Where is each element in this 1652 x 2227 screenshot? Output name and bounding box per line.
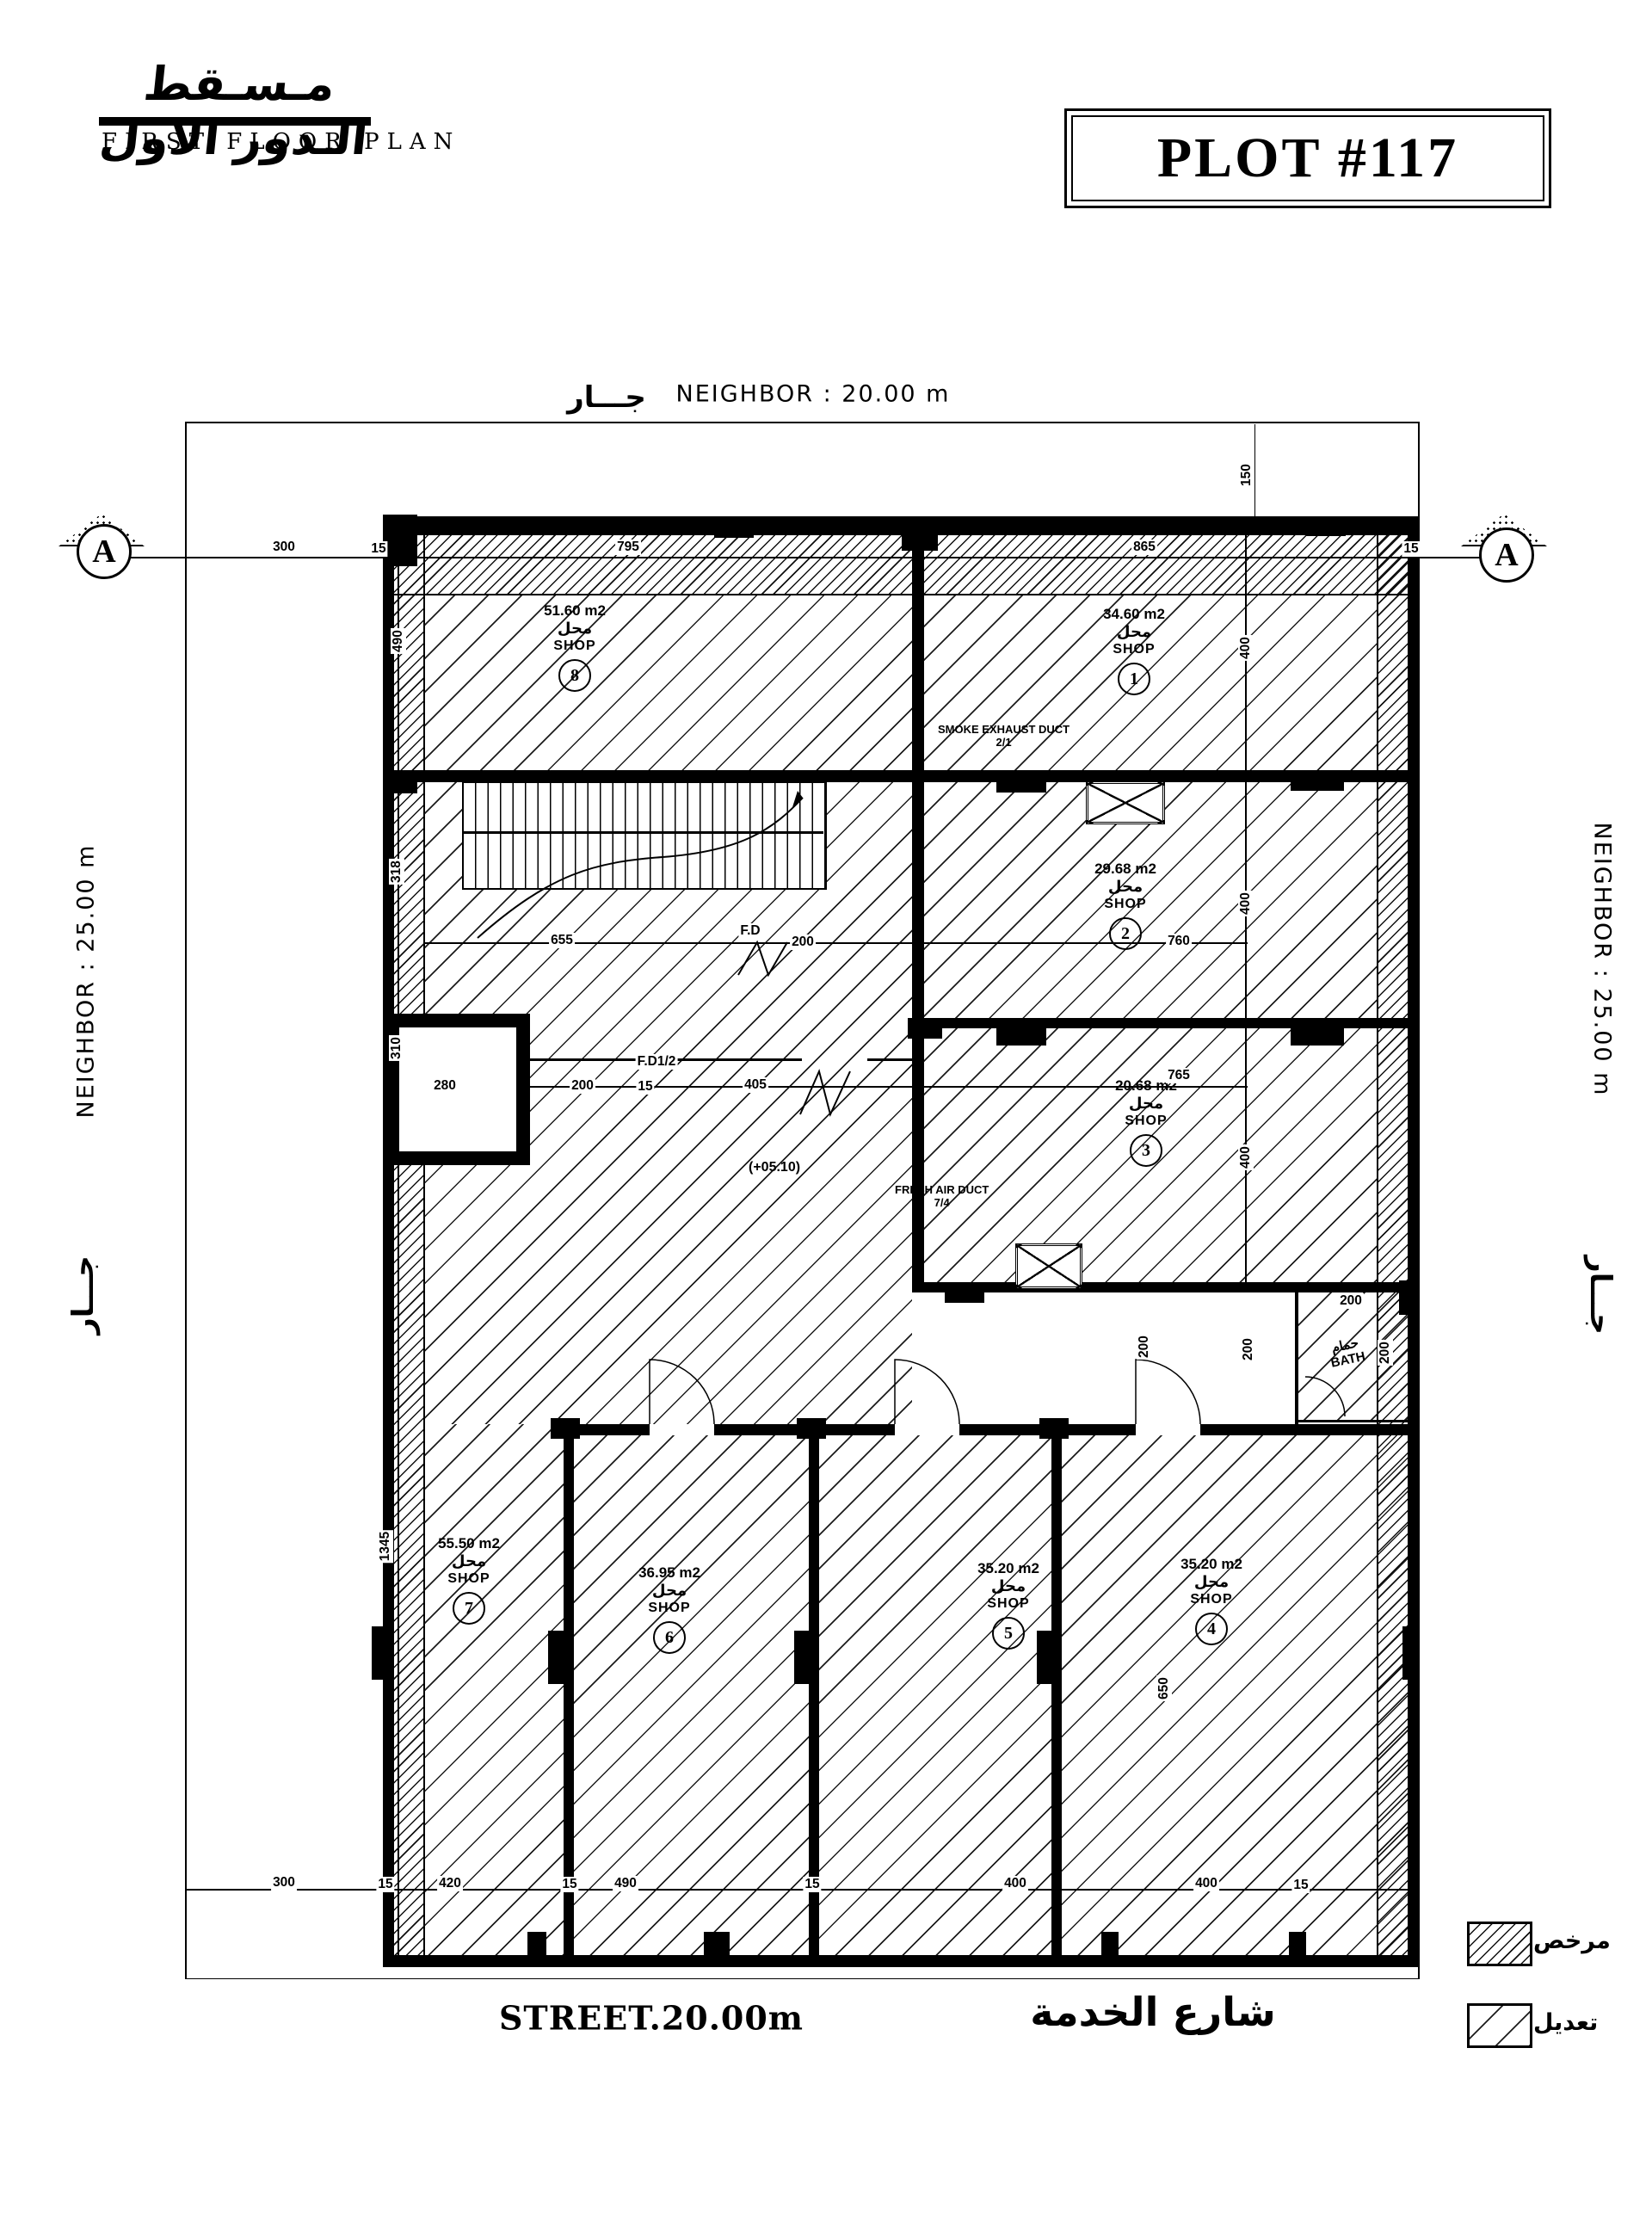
wall-segment xyxy=(867,1058,912,1061)
shop-name-arabic: محل xyxy=(404,1552,533,1571)
column xyxy=(794,1631,811,1684)
dimension-label: 400 xyxy=(1193,1876,1219,1891)
plot-boundary-top xyxy=(185,422,1420,423)
plot-number: PLOT #117 xyxy=(1071,115,1544,201)
column xyxy=(1291,1028,1344,1046)
shop-name-arabic: محل xyxy=(1082,1095,1211,1113)
neighbor-left-arabic: جـــار xyxy=(66,1255,101,1335)
shop-label: 20.68 m2محلSHOP3 xyxy=(1082,1077,1211,1167)
dimension-label: 15 xyxy=(1291,1878,1310,1893)
dimension-label: 310 xyxy=(389,1035,404,1061)
dimension-label: 200 xyxy=(1137,1334,1152,1360)
neighbor-right-arabic: جـــار xyxy=(1583,1255,1618,1335)
dimension-label: 15 xyxy=(369,541,387,557)
plot-boundary-left xyxy=(185,422,187,1979)
column xyxy=(1306,517,1346,536)
column xyxy=(797,1418,826,1439)
column xyxy=(527,1932,546,1966)
dimension-label: F.D xyxy=(738,923,761,939)
plot-boundary-right xyxy=(1418,422,1420,1979)
elevator-cab xyxy=(398,1026,518,1153)
shop-number-circle: 6 xyxy=(653,1621,686,1654)
column xyxy=(383,515,417,566)
column xyxy=(704,1932,730,1966)
smoke-exhaust-duct-box xyxy=(1086,781,1165,824)
dimension-label: 420 xyxy=(437,1876,463,1891)
shop-name-arabic: محل xyxy=(1147,1573,1276,1592)
shop-name-arabic: محل xyxy=(605,1582,734,1601)
column xyxy=(1402,1626,1418,1680)
shop-name-arabic: محل xyxy=(944,1577,1073,1596)
dimension-label: 490 xyxy=(613,1876,638,1891)
shop-name: SHOP xyxy=(510,638,639,654)
wall-segment xyxy=(383,516,394,1966)
wall-segment xyxy=(1408,516,1418,1966)
shop-name: SHOP xyxy=(1069,642,1199,657)
wall-segment xyxy=(912,535,924,1292)
wall-segment xyxy=(383,516,1418,535)
dimension-label: 200 xyxy=(790,935,816,950)
smoke-duct-label: SMOKE EXHAUST DUCT2/1 xyxy=(938,723,1069,749)
neighbor-top-arabic: جـــار xyxy=(567,380,646,415)
shop-name: SHOP xyxy=(605,1601,734,1616)
title-underline xyxy=(99,117,371,126)
shop-label: 55.50 m2محلSHOP7 xyxy=(404,1535,533,1625)
shop-area: 51.60 m2 xyxy=(510,602,639,620)
dimension-label: 400 xyxy=(1238,891,1254,916)
shop-name: SHOP xyxy=(1061,897,1190,912)
fresh-duct-label: FRESH AIR DUCT7/4 xyxy=(895,1183,989,1209)
staircase-rail xyxy=(462,831,823,834)
column xyxy=(996,774,1046,793)
shop-area: 55.50 m2 xyxy=(404,1535,533,1552)
shop-area: 35.20 m2 xyxy=(944,1560,1073,1577)
fresh-air-duct-box xyxy=(1015,1243,1082,1289)
neighbor-left-label: NEIGHBOR : 25.00 m xyxy=(73,844,100,1119)
street-label-arabic: شارع الخدمة xyxy=(1030,1989,1276,2035)
column xyxy=(372,1626,385,1680)
shop-area: 35.20 m2 xyxy=(1147,1556,1276,1573)
dimension-label: 400 xyxy=(1002,1876,1028,1891)
shop-name: SHOP xyxy=(944,1596,1073,1612)
wall-segment xyxy=(924,1018,1418,1028)
dimension-label: 280 xyxy=(432,1078,458,1094)
shop-number-circle: 2 xyxy=(1109,917,1142,950)
dimension-label: 765 xyxy=(1166,1068,1192,1083)
dimension-label: 1345 xyxy=(378,1530,393,1563)
dimension-label: 200 xyxy=(1241,1336,1256,1362)
section-line xyxy=(102,557,1504,558)
dimension-label: 650 xyxy=(1156,1675,1172,1701)
dimension-label: 400 xyxy=(1238,1144,1254,1170)
wall-segment xyxy=(1051,1435,1062,1955)
floor-plan-sheet: مـسـقط الـدور الاول FIRST FLOOR PLAN PLO… xyxy=(0,0,1652,2227)
dimension-label: 200 xyxy=(570,1078,595,1094)
shop-number-circle: 7 xyxy=(453,1592,485,1625)
shop-label: 36.95 m2محلSHOP6 xyxy=(605,1564,734,1654)
dimension-label: 15 xyxy=(560,1877,578,1892)
top-wall-band-hatch xyxy=(394,535,1408,594)
dimension-label: 200 xyxy=(1378,1340,1393,1366)
wall-segment xyxy=(1295,1420,1418,1422)
neighbor-right-label: NEIGHBOR : 25.00 m xyxy=(1589,823,1616,1097)
plot-boundary-bottom xyxy=(185,1978,1420,1979)
dimension-label: F.D1/2 xyxy=(636,1054,678,1070)
level-annotation: (+05.10) xyxy=(749,1160,800,1175)
column xyxy=(1291,772,1344,791)
dimension-label: 200 xyxy=(1338,1293,1364,1309)
legend-licensed-label: مرخص xyxy=(1533,1928,1611,1954)
dimension-label: 150 xyxy=(1239,462,1254,488)
dimension-label: 400 xyxy=(1238,635,1254,661)
dimension-label: 490 xyxy=(391,628,406,654)
column xyxy=(1101,1932,1119,1966)
dim-line-bottom xyxy=(185,1889,1418,1891)
shop-name-arabic: محل xyxy=(1069,623,1199,642)
shop-4-hatch xyxy=(1062,1435,1408,1955)
column xyxy=(902,516,938,551)
column xyxy=(996,1028,1046,1046)
plot-number-box: PLOT #117 xyxy=(1064,108,1551,208)
shop-label: 35.20 m2محلSHOP5 xyxy=(944,1560,1073,1650)
shop-8-hatch xyxy=(423,594,912,770)
right-wall-band-hatch xyxy=(1378,535,1408,1955)
shop-6-hatch xyxy=(574,1435,809,1955)
dimension-label: 795 xyxy=(615,540,641,555)
section-marker-right: A xyxy=(1479,527,1534,583)
shop-name: SHOP xyxy=(404,1571,533,1587)
column xyxy=(1289,1932,1306,1966)
shop-name-arabic: محل xyxy=(1061,878,1190,897)
wall-segment xyxy=(924,1282,1418,1292)
legend-modified-label: تعديل xyxy=(1533,2009,1598,2036)
dimension-label: 655 xyxy=(549,933,575,948)
shop-number-circle: 5 xyxy=(992,1617,1025,1650)
top-band-inner-line xyxy=(383,594,1408,595)
dimension-label: 318 xyxy=(389,859,404,885)
column xyxy=(551,1418,580,1439)
column xyxy=(383,771,417,793)
neighbor-top-label: NEIGHBOR : 20.00 m xyxy=(676,381,951,408)
street-label: STREET.20.00m xyxy=(499,1999,804,2038)
shop-number-circle: 1 xyxy=(1118,663,1150,695)
left-band-inner-line xyxy=(423,535,425,1955)
dimension-label: 405 xyxy=(743,1077,768,1093)
column xyxy=(908,1018,942,1039)
drawing-title-english: FIRST FLOOR PLAN xyxy=(102,129,377,155)
shop-name: SHOP xyxy=(1147,1592,1276,1607)
column xyxy=(945,1282,984,1303)
dimension-label: 760 xyxy=(1166,934,1192,949)
elevator-shaft xyxy=(385,1014,530,1165)
shop-number-circle: 4 xyxy=(1195,1613,1228,1645)
staircase xyxy=(462,781,827,890)
legend-licensed-swatch xyxy=(1467,1922,1532,1966)
dimension-label: 865 xyxy=(1131,540,1157,555)
shop-label: 35.20 m2محلSHOP4 xyxy=(1147,1556,1276,1645)
column xyxy=(548,1631,565,1684)
column xyxy=(1399,1280,1418,1315)
shop-name: SHOP xyxy=(1082,1113,1211,1129)
wall-segment xyxy=(383,770,1418,782)
wall-segment xyxy=(1200,1424,1418,1435)
wall-segment xyxy=(1295,1282,1298,1424)
shop-label: 51.60 m2محلSHOP8 xyxy=(510,602,639,692)
dimension-label: 15 xyxy=(376,1877,394,1892)
shop-label: 34.60 m2محلSHOP1 xyxy=(1069,606,1199,695)
dimension-label: 15 xyxy=(1402,541,1420,557)
dimension-label: 15 xyxy=(636,1079,654,1095)
column xyxy=(714,519,754,538)
section-marker-left: A xyxy=(77,524,132,579)
setback-extension-line xyxy=(1254,424,1255,516)
shop-area: 36.95 m2 xyxy=(605,1564,734,1582)
shop-area: 29.68 m2 xyxy=(1061,861,1190,878)
legend-modified-swatch xyxy=(1467,2003,1532,2048)
dimension-label: 300 xyxy=(271,540,297,555)
shop-area: 34.60 m2 xyxy=(1069,606,1199,623)
dimension-label: 15 xyxy=(803,1877,821,1892)
dimension-label: 300 xyxy=(271,1875,297,1891)
shop-number-circle: 8 xyxy=(558,659,591,692)
dim-line-left xyxy=(398,516,399,1966)
column xyxy=(1039,1418,1069,1439)
right-band-inner-line xyxy=(1377,535,1378,1955)
shop-number-circle: 3 xyxy=(1130,1134,1162,1167)
shop-name-arabic: محل xyxy=(510,620,639,638)
